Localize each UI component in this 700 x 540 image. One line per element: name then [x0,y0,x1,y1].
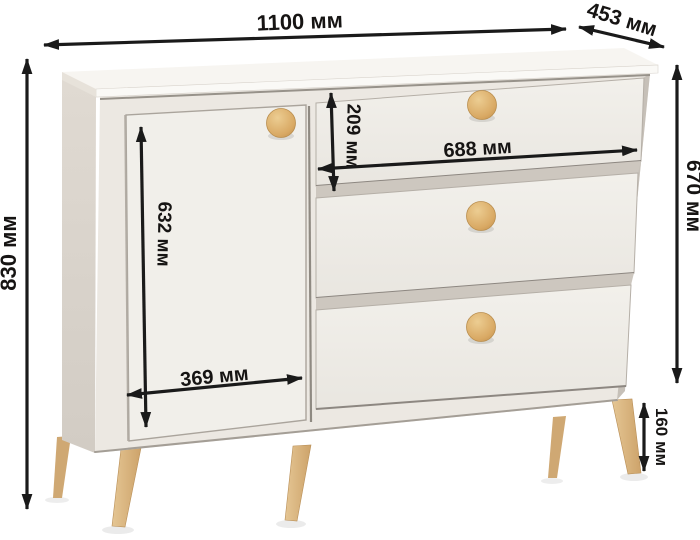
leg-back-left [53,436,71,498]
leg-front-middle [285,445,311,521]
dim-leg-height: 160 мм [644,403,671,471]
side-panel [62,79,96,453]
diagram-canvas: 1100 мм 453 мм 830 мм 670 мм 209 мм 688 … [0,0,700,540]
dim-drawer-width-label: 688 мм [443,136,513,162]
floor-shadows [45,473,648,534]
furniture-dimension-diagram: 1100 мм 453 мм 830 мм 670 мм 209 мм 688 … [0,0,700,540]
door-knob [267,109,296,138]
leg-front-left [112,448,141,527]
drawer-2-knob [467,202,496,231]
dim-total-height: 830 мм [0,59,27,509]
dim-total-width-label: 1100 мм [256,7,343,35]
drawers [316,78,644,409]
dim-total-width: 1100 мм [44,7,566,45]
drawer-1-knob [468,91,497,120]
leg-back-right [548,416,566,478]
dim-top-drawer-height-label: 209 мм [341,103,363,168]
dim-depth: 453 мм [579,0,664,47]
dim-leg-height-label: 160 мм [652,408,671,466]
dim-door-height-label: 632 мм [152,201,174,266]
dim-depth-label: 453 мм [584,0,660,41]
drawer-3-knob [467,313,496,342]
door-front [126,105,306,441]
dim-body-height: 670 мм [677,65,700,383]
leg-front-right [612,399,641,474]
dim-body-height-label: 670 мм [682,160,700,232]
dim-total-height-label: 830 мм [0,215,21,290]
door [125,105,311,441]
